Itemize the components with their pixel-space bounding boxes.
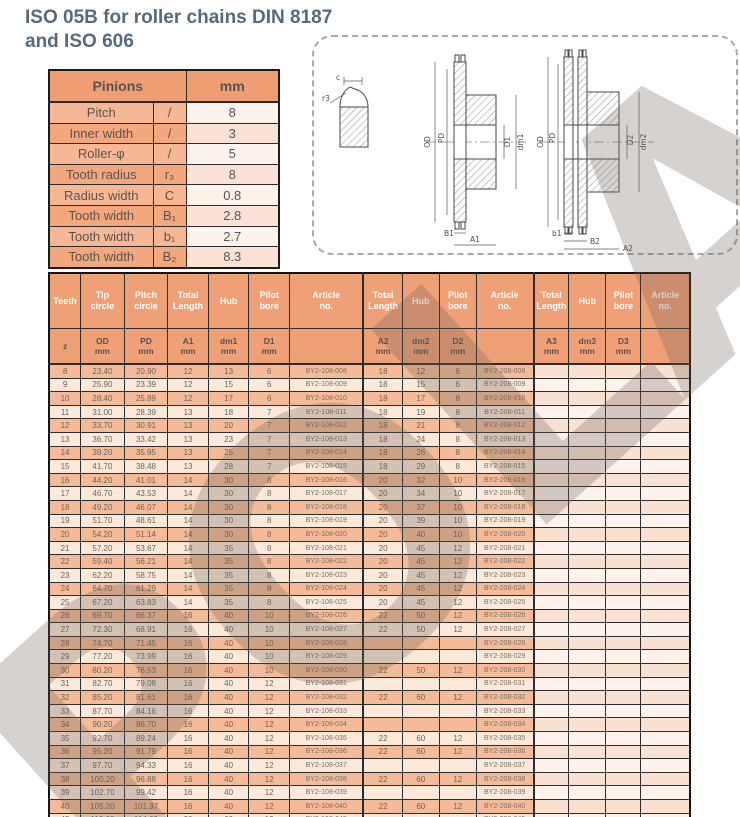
table-row: 2464.7061.2914358BY2-108-024204512BY2-20… xyxy=(49,582,690,596)
table-cell xyxy=(534,704,569,718)
table-cell: BY2-108-037 xyxy=(289,759,363,773)
table-cell xyxy=(534,759,569,773)
column-group-header: Tip circle xyxy=(81,273,125,329)
table-cell: 14 xyxy=(168,514,209,528)
table-cell xyxy=(641,609,690,623)
table-cell xyxy=(641,392,690,406)
table-cell: 28.39 xyxy=(124,405,168,419)
dim-label-pd2: PD xyxy=(548,133,557,144)
table-cell xyxy=(641,786,690,800)
table-cell: BY2-208-038 xyxy=(476,772,533,786)
table-cell: 8 xyxy=(249,582,290,596)
table-cell: 18 xyxy=(49,500,81,514)
table-cell: 22 xyxy=(363,623,402,637)
pinions-value: 8.3 xyxy=(186,247,279,268)
table-cell xyxy=(606,664,641,678)
table-cell: 84.16 xyxy=(124,704,168,718)
table-cell: 12 xyxy=(439,568,476,582)
table-row: 2362.2058.7514358BY2-108-023204512BY2-20… xyxy=(49,568,690,582)
table-cell: 31 xyxy=(49,677,81,691)
table-cell: 12 xyxy=(439,541,476,555)
table-cell xyxy=(534,813,569,817)
table-cell xyxy=(534,609,569,623)
table-cell: BY2-108-034 xyxy=(289,718,363,732)
column-group-header: Article no. xyxy=(641,273,690,329)
table-cell: 18 xyxy=(363,460,402,474)
table-cell: 35 xyxy=(208,568,249,582)
table-cell xyxy=(534,596,569,610)
table-cell: 40 xyxy=(208,623,249,637)
table-cell: 35 xyxy=(208,596,249,610)
table-cell: BY2-108-009 xyxy=(289,378,363,392)
table-cell xyxy=(641,677,690,691)
table-cell: 118.60 xyxy=(81,813,125,817)
table-cell: 7 xyxy=(249,419,290,433)
table-cell: 12 xyxy=(249,800,290,814)
table-cell: 50 xyxy=(402,623,439,637)
pinions-value: 8 xyxy=(186,164,279,185)
table-cell: BY2-208-026 xyxy=(476,609,533,623)
pinions-value: 2.8 xyxy=(186,205,279,226)
table-cell: BY2-108-012 xyxy=(289,419,363,433)
table-cell: 40 xyxy=(208,636,249,650)
table-cell xyxy=(363,813,402,817)
table-cell xyxy=(439,636,476,650)
table-cell: 12 xyxy=(249,745,290,759)
table-cell: BY2-108-030 xyxy=(289,664,363,678)
table-cell: 40 xyxy=(208,677,249,691)
table-cell: 27 xyxy=(49,623,81,637)
table-row: 1849.2046.0714308BY2-108-018203710BY2-20… xyxy=(49,500,690,514)
dim-label-b1cap: B1 xyxy=(444,229,454,238)
table-cell: 13 xyxy=(168,405,209,419)
table-cell xyxy=(569,759,606,773)
table-cell: BY2-108-022 xyxy=(289,555,363,569)
table-cell: 22 xyxy=(363,691,402,705)
table-cell: 22 xyxy=(363,745,402,759)
table-cell: 45 xyxy=(402,568,439,582)
table-cell: 79.08 xyxy=(124,677,168,691)
column-group-header: Total Length xyxy=(168,273,209,329)
table-cell: BY2-108-010 xyxy=(289,392,363,406)
table-cell: 15 xyxy=(49,460,81,474)
column-sub-header: A1 mm xyxy=(168,329,209,365)
table-cell xyxy=(569,609,606,623)
table-cell: 12 xyxy=(402,364,439,378)
table-cell xyxy=(569,650,606,664)
table-cell: 40 xyxy=(208,704,249,718)
table-cell: BY2-208-020 xyxy=(476,528,533,542)
table-cell: 87.70 xyxy=(81,704,125,718)
pinions-symbol: / xyxy=(153,144,186,165)
table-cell xyxy=(439,813,476,817)
pinions-row: Tooth widthb₁2.7 xyxy=(49,226,279,247)
table-cell xyxy=(606,392,641,406)
table-cell xyxy=(606,405,641,419)
table-cell: 12 xyxy=(249,786,290,800)
table-cell: 14 xyxy=(49,446,81,460)
table-cell xyxy=(641,473,690,487)
table-cell: BY2-208-023 xyxy=(476,568,533,582)
pinions-row: Roller-φ/5 xyxy=(49,144,279,165)
table-cell: BY2-108-014 xyxy=(289,446,363,460)
table-cell: BY2-208-045 xyxy=(476,813,533,817)
table-cell xyxy=(569,473,606,487)
table-cell xyxy=(569,419,606,433)
table-cell: BY2-208-008 xyxy=(476,364,533,378)
table-cell xyxy=(534,623,569,637)
table-cell xyxy=(534,446,569,460)
table-cell: 8 xyxy=(249,473,290,487)
table-cell: BY2-208-034 xyxy=(476,718,533,732)
header-row: zOD mmPD mmA1 mmdm1 mmD1 mmA2 mmdm2 mmD2… xyxy=(49,329,690,365)
column-sub-header: D3 mm xyxy=(606,329,641,365)
page-title-line2: and ISO 606 xyxy=(25,30,332,54)
table-cell xyxy=(606,500,641,514)
table-cell: 40 xyxy=(208,664,249,678)
single-sprocket-drawing: OD PD D1 dm1 B1 A1 xyxy=(423,55,526,245)
table-cell xyxy=(569,677,606,691)
table-cell: 16 xyxy=(168,718,209,732)
table-cell: 12 xyxy=(439,609,476,623)
table-cell: 60 xyxy=(402,691,439,705)
table-cell xyxy=(569,500,606,514)
table-cell: 16 xyxy=(168,623,209,637)
table-cell: 43.53 xyxy=(124,487,168,501)
pinions-symbol: b₁ xyxy=(153,226,186,247)
table-cell: BY2-208-036 xyxy=(476,745,533,759)
table-cell: 12 xyxy=(439,555,476,569)
table-cell: 61.29 xyxy=(124,582,168,596)
pinions-value: 5 xyxy=(186,144,279,165)
table-cell: 10 xyxy=(439,514,476,528)
table-row: 2669.7066.37164010BY2-108-026225012BY2-2… xyxy=(49,609,690,623)
column-sub-header: D1 mm xyxy=(249,329,290,365)
table-row: 3490.2086.70164012BY2-108-034BY2-208-034 xyxy=(49,718,690,732)
table-cell: BY2-208-015 xyxy=(476,460,533,474)
table-cell xyxy=(363,677,402,691)
table-cell xyxy=(641,636,690,650)
table-cell: 23 xyxy=(208,432,249,446)
table-cell xyxy=(534,460,569,474)
pinions-symbol: B₂ xyxy=(153,247,186,268)
table-cell xyxy=(439,759,476,773)
table-cell: 30 xyxy=(208,528,249,542)
table-cell: 34 xyxy=(402,487,439,501)
column-group-header: Hub xyxy=(402,273,439,329)
table-cell: 16 xyxy=(168,650,209,664)
table-cell xyxy=(534,718,569,732)
table-cell: BY2-108-019 xyxy=(289,514,363,528)
table-cell: BY2-108-029 xyxy=(289,650,363,664)
table-cell: 18 xyxy=(363,364,402,378)
table-cell: 6 xyxy=(249,378,290,392)
table-cell: 8 xyxy=(439,446,476,460)
table-cell: 25 xyxy=(49,596,81,610)
table-cell: 16 xyxy=(168,636,209,650)
table-cell: 10 xyxy=(249,664,290,678)
table-cell: 99.42 xyxy=(124,786,168,800)
table-cell: BY2-208-039 xyxy=(476,786,533,800)
pinions-label: Pitch xyxy=(49,102,153,123)
table-cell: 8 xyxy=(249,555,290,569)
table-cell: BY2-108-028 xyxy=(289,636,363,650)
table-cell xyxy=(641,378,690,392)
table-cell: 16 xyxy=(168,677,209,691)
table-cell: BY2-108-035 xyxy=(289,732,363,746)
table-cell: 26 xyxy=(49,609,81,623)
table-cell xyxy=(606,704,641,718)
table-cell xyxy=(569,487,606,501)
table-cell: BY2-108-016 xyxy=(289,473,363,487)
table-cell: 49.20 xyxy=(81,500,125,514)
table-cell: 38.48 xyxy=(124,460,168,474)
table-cell: 45 xyxy=(402,582,439,596)
table-cell: 19 xyxy=(49,514,81,528)
table-cell: 16 xyxy=(168,745,209,759)
table-cell xyxy=(606,609,641,623)
table-cell xyxy=(606,813,641,817)
table-cell xyxy=(606,772,641,786)
dim-label-d2: D2 xyxy=(626,134,635,145)
table-cell: 72.30 xyxy=(81,623,125,637)
table-cell: 30 xyxy=(208,514,249,528)
table-cell: 45 xyxy=(402,555,439,569)
table-cell: 44.20 xyxy=(81,473,125,487)
table-cell: 20 xyxy=(208,419,249,433)
table-row: 2977.2073.99164010BY2-108-029BY2-208-029 xyxy=(49,650,690,664)
table-cell xyxy=(606,691,641,705)
table-cell: BY2-108-038 xyxy=(289,772,363,786)
table-cell: 8 xyxy=(439,432,476,446)
table-cell: 35 xyxy=(208,541,249,555)
table-cell xyxy=(606,650,641,664)
table-row: 2567.2063.8314358BY2-108-025204512BY2-20… xyxy=(49,596,690,610)
table-cell: BY2-108-027 xyxy=(289,623,363,637)
table-cell: 101.97 xyxy=(124,800,168,814)
table-cell: 60 xyxy=(402,745,439,759)
table-cell xyxy=(534,392,569,406)
column-sub-header xyxy=(289,329,363,365)
table-cell: 18 xyxy=(208,405,249,419)
table-cell: 22 xyxy=(363,732,402,746)
table-cell xyxy=(641,405,690,419)
table-cell: 7 xyxy=(249,432,290,446)
table-cell: 36 xyxy=(49,745,81,759)
table-cell: 20.90 xyxy=(124,364,168,378)
table-row: 1233.7030.9113207BY2-108-01218218BY2-208… xyxy=(49,419,690,433)
table-cell xyxy=(606,514,641,528)
table-cell: 21 xyxy=(49,541,81,555)
table-cell xyxy=(606,732,641,746)
table-cell xyxy=(402,650,439,664)
table-cell: 94.33 xyxy=(124,759,168,773)
table-cell: 14 xyxy=(168,473,209,487)
table-cell: 20 xyxy=(363,500,402,514)
table-cell xyxy=(569,378,606,392)
column-sub-header: z xyxy=(49,329,81,365)
table-cell: 6 xyxy=(439,378,476,392)
table-cell: BY2-108-032 xyxy=(289,691,363,705)
table-cell: 41.70 xyxy=(81,460,125,474)
table-cell: 10 xyxy=(249,623,290,637)
table-cell: 33.42 xyxy=(124,432,168,446)
table-cell: 29 xyxy=(402,460,439,474)
table-cell xyxy=(606,555,641,569)
dim-label-r3: r3 xyxy=(322,94,330,103)
table-cell: 18 xyxy=(363,392,402,406)
column-sub-header xyxy=(476,329,533,365)
table-cell xyxy=(402,759,439,773)
table-cell: 18 xyxy=(363,432,402,446)
table-cell: 12 xyxy=(439,732,476,746)
column-sub-header: D2 mm xyxy=(439,329,476,365)
table-cell xyxy=(606,432,641,446)
dim-label-c: c xyxy=(336,73,340,82)
pinions-symbol: r₃ xyxy=(153,164,186,185)
table-cell: 20 xyxy=(363,514,402,528)
table-cell: 64.70 xyxy=(81,582,125,596)
table-row: 3797.7094.33164012BY2-108-037BY2-208-037 xyxy=(49,759,690,773)
column-sub-header: A3 mm xyxy=(534,329,569,365)
table-cell xyxy=(606,446,641,460)
table-cell: 40 xyxy=(208,718,249,732)
table-cell xyxy=(606,487,641,501)
page: ISO 05B for roller chains DIN 8187 and I… xyxy=(0,0,740,817)
table-cell: 21 xyxy=(402,419,439,433)
table-cell: 60 xyxy=(208,813,249,817)
table-cell: BY2-108-039 xyxy=(289,786,363,800)
table-cell: 30 xyxy=(49,664,81,678)
table-cell xyxy=(641,691,690,705)
table-cell: 16 xyxy=(168,786,209,800)
pinions-value: 0.8 xyxy=(186,185,279,206)
table-cell xyxy=(569,745,606,759)
table-cell: BY2-108-033 xyxy=(289,704,363,718)
table-row: 45118.60114.69206012BY2-108-045BY2-208-0… xyxy=(49,813,690,817)
table-cell xyxy=(569,718,606,732)
table-cell: 40 xyxy=(402,528,439,542)
table-cell xyxy=(641,759,690,773)
table-row: 38100.2096.88164012BY2-108-038226012BY2-… xyxy=(49,772,690,786)
table-cell xyxy=(569,664,606,678)
table-row: 2157.2053.6714358BY2-108-021204512BY2-20… xyxy=(49,541,690,555)
pinions-label: Tooth width xyxy=(49,205,153,226)
page-title-line1: ISO 05B for roller chains DIN 8187 xyxy=(25,6,332,30)
table-cell: 13 xyxy=(168,446,209,460)
table-cell: 23.39 xyxy=(124,378,168,392)
column-sub-header: A2 mm xyxy=(363,329,402,365)
table-cell: 6 xyxy=(439,364,476,378)
pinions-row: Pitch/8 xyxy=(49,102,279,123)
table-cell: 46.07 xyxy=(124,500,168,514)
table-cell: 7 xyxy=(249,460,290,474)
table-cell xyxy=(569,596,606,610)
table-cell xyxy=(641,568,690,582)
table-cell: 35 xyxy=(49,732,81,746)
table-cell xyxy=(641,596,690,610)
dim-label-a2: A2 xyxy=(623,244,633,253)
table-cell xyxy=(641,772,690,786)
table-cell: 22 xyxy=(363,800,402,814)
table-cell xyxy=(641,732,690,746)
table-cell: 51.14 xyxy=(124,528,168,542)
table-cell: 8 xyxy=(49,364,81,378)
dim-label-b2: B2 xyxy=(590,237,600,246)
pinions-label: Inner width xyxy=(49,123,153,144)
table-cell: 30 xyxy=(208,487,249,501)
table-cell: 80.20 xyxy=(81,664,125,678)
table-cell: 12 xyxy=(439,664,476,678)
column-sub-header: dm2 mm xyxy=(402,329,439,365)
table-cell: 13 xyxy=(168,419,209,433)
column-group-header: Total Length xyxy=(534,273,569,329)
table-cell: 8 xyxy=(249,541,290,555)
table-cell xyxy=(363,759,402,773)
table-cell xyxy=(439,786,476,800)
table-row: 3285.2081.61164012BY2-108-032226012BY2-2… xyxy=(49,691,690,705)
table-cell xyxy=(606,800,641,814)
sprocket-diagram: c r3 OD PD xyxy=(314,37,736,253)
table-cell xyxy=(363,704,402,718)
table-cell xyxy=(534,745,569,759)
table-cell: 20 xyxy=(49,528,81,542)
table-cell: BY2-108-026 xyxy=(289,609,363,623)
column-group-header: Pilot bore xyxy=(249,273,290,329)
table-cell: 12 xyxy=(439,582,476,596)
column-group-header: Hub xyxy=(208,273,249,329)
table-cell xyxy=(534,514,569,528)
table-cell: 9 xyxy=(49,378,81,392)
pinions-header-mm: mm xyxy=(186,70,279,102)
table-row: 1541.7038.4813287BY2-108-01518298BY2-208… xyxy=(49,460,690,474)
table-cell: 60 xyxy=(402,800,439,814)
table-cell xyxy=(569,514,606,528)
table-cell xyxy=(641,582,690,596)
table-cell: 10 xyxy=(439,487,476,501)
table-cell xyxy=(641,718,690,732)
table-cell: 40 xyxy=(49,800,81,814)
table-cell xyxy=(534,432,569,446)
table-cell: 16 xyxy=(49,473,81,487)
table-cell xyxy=(641,704,690,718)
table-cell xyxy=(569,772,606,786)
table-cell xyxy=(606,460,641,474)
table-cell: 18 xyxy=(363,419,402,433)
table-cell: 10 xyxy=(439,500,476,514)
table-cell: BY2-208-013 xyxy=(476,432,533,446)
pinions-symbol: / xyxy=(153,102,186,123)
table-cell: BY2-108-017 xyxy=(289,487,363,501)
table-cell xyxy=(641,800,690,814)
table-cell: 7 xyxy=(249,405,290,419)
table-cell: 54.20 xyxy=(81,528,125,542)
table-cell: 14 xyxy=(168,528,209,542)
table-cell xyxy=(569,446,606,460)
dim-label-d1: D1 xyxy=(503,136,512,147)
table-cell xyxy=(534,487,569,501)
table-cell: 30 xyxy=(208,500,249,514)
table-row: 1028.4025.8912176BY2-108-01018178BY2-208… xyxy=(49,392,690,406)
pinions-row: Tooth widthB₂8.3 xyxy=(49,247,279,268)
table-cell: BY2-108-015 xyxy=(289,460,363,474)
table-row: 3592.7089.24164012BY2-108-035226012BY2-2… xyxy=(49,732,690,746)
table-cell: 28 xyxy=(208,460,249,474)
table-row: 2874.7071.45164010BY2-108-028BY2-208-028 xyxy=(49,636,690,650)
table-cell xyxy=(534,555,569,569)
pinions-value: 8 xyxy=(186,102,279,123)
table-cell xyxy=(534,677,569,691)
